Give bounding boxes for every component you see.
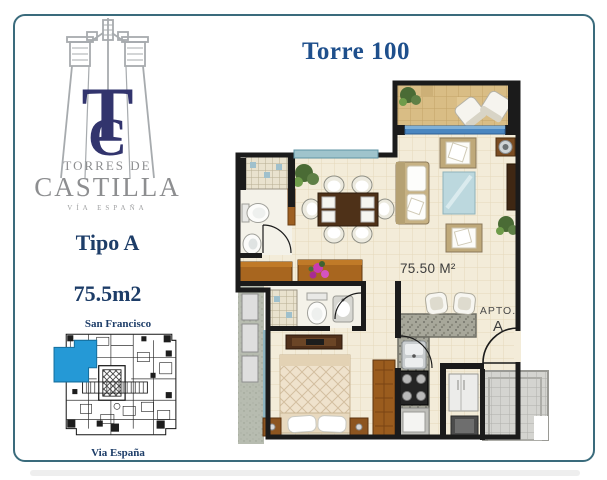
armchair [440, 138, 476, 168]
dining-chair [352, 225, 372, 243]
map-street-top-label: San Francisco [52, 318, 184, 330]
unit-type-label: Tipo A [15, 230, 200, 256]
dining-chair [376, 199, 394, 219]
torres-de-castilla-logo: T C TORRES DE CASTILLA VÍA ESPAÑA [15, 16, 200, 218]
refrigerator [449, 374, 478, 411]
bar-stool [425, 292, 449, 316]
closet [373, 360, 395, 437]
floor-plan: 75.50 M² APTO. A [230, 72, 560, 447]
brochure-page: T C TORRES DE CASTILLA VÍA ESPAÑA Tipo A… [0, 0, 607, 480]
hall-consoles [238, 260, 362, 283]
toilet [307, 293, 327, 324]
shower-2 [270, 290, 297, 327]
dining-chair [324, 176, 344, 194]
building-floorplate-map [52, 331, 184, 441]
counter-top [398, 314, 476, 337]
side-table [496, 138, 515, 156]
entry-opening [514, 331, 521, 362]
brand-line-castilla: CASTILLA [15, 172, 200, 203]
unit-area-label: 75.5m2 [15, 281, 200, 307]
site-plan-block: San Francisco [52, 318, 184, 459]
apto-label: APTO. [480, 305, 516, 317]
corridor-hatch [82, 382, 147, 393]
stove [399, 371, 428, 405]
dining-chair [324, 225, 344, 243]
sink [243, 234, 261, 254]
bar-stool [453, 292, 476, 315]
sofa [396, 162, 429, 224]
monogram-letter-c: C [15, 110, 200, 164]
bed [280, 355, 350, 433]
brand-line-via-espana: VÍA ESPAÑA [15, 204, 200, 212]
apto-letter: A [493, 318, 503, 335]
armchair [446, 224, 482, 252]
tv-shelf [286, 335, 342, 349]
bathroom-2 [268, 286, 361, 328]
coffee-table [443, 172, 475, 214]
tower-title: Torre 100 [256, 38, 456, 66]
plan-area-label: 75.50 M² [400, 261, 456, 276]
oven [399, 408, 429, 436]
dining-window [294, 150, 378, 158]
toilet [242, 204, 269, 223]
balcony-slider-highlight [405, 126, 505, 129]
dining-chair [302, 199, 320, 219]
washer [451, 416, 478, 436]
bathroom-1 [240, 157, 295, 255]
map-street-bottom-label: Via España [52, 447, 184, 459]
dining-chair [352, 176, 372, 194]
scan-shadow [30, 470, 580, 476]
balcony [397, 85, 516, 130]
nightstand [350, 418, 368, 436]
